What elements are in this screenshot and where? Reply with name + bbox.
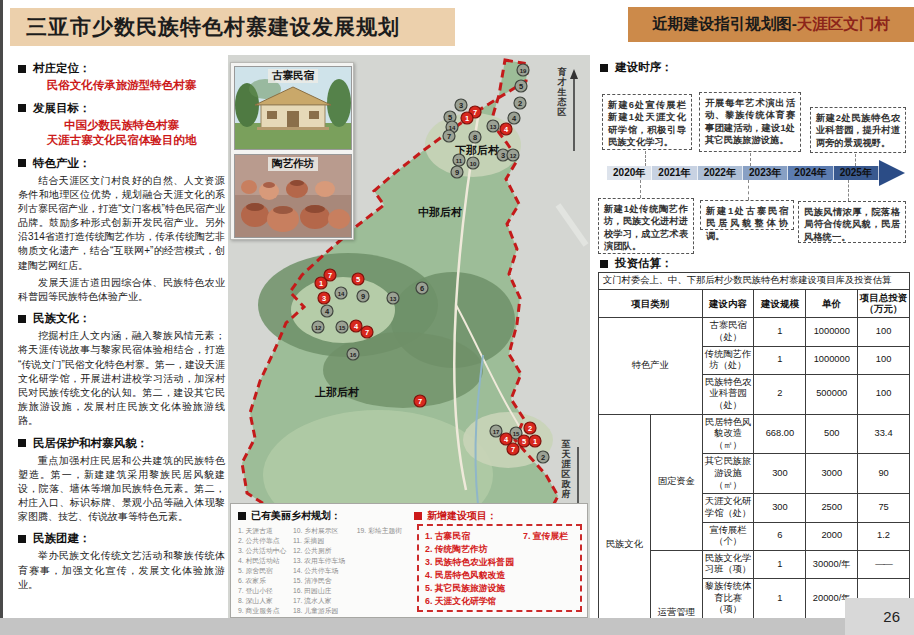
- red-square-icon: [414, 512, 422, 520]
- timeline-year: 2025年: [834, 166, 879, 180]
- road-label-south: 至天涯区政府: [561, 439, 572, 499]
- highlight-line: 天涯古寨文化民宿体验目的地: [18, 133, 225, 149]
- photo-panel: 古寨民宿 陶艺作坊: [230, 62, 354, 240]
- investment-heading: 投资估算：: [600, 256, 673, 271]
- black-square-icon: [18, 439, 26, 447]
- svg-text:7: 7: [418, 397, 422, 406]
- timeline-bar: 2020年2021年2022年2023年2024年2025年: [607, 166, 879, 180]
- svg-text:7: 7: [511, 445, 515, 454]
- svg-text:13: 13: [390, 296, 397, 302]
- timeline-box-2022: 开展每年艺术演出活动、黎族传统体育赛事团建活动，建设1处其它民族旅游设施。: [699, 92, 801, 152]
- table-title: 文门村委会上、中、下那后村少数民族特色村寨建设项目库及投资估算: [599, 273, 910, 290]
- left-edge-line: [0, 0, 3, 635]
- svg-text:7: 7: [365, 328, 369, 337]
- legend-column: 19. 彩绘主题街: [357, 526, 410, 616]
- legend-item: 14. 公共停车场: [293, 566, 357, 576]
- timeline-year: 2022年: [698, 166, 743, 180]
- section-heading: 村庄定位：: [18, 61, 225, 76]
- section-paragraph: 发展天涯古道田园综合体、民族特色农业科普园等民族特色体验产业。: [18, 276, 225, 304]
- table-row: 特色产业古寨民宿（处）11000000100: [599, 318, 910, 346]
- section-paragraph: 举办民族文化传统文艺活动和黎族传统体育赛事，加强文化宣传，发展文化体验旅游业。: [18, 549, 225, 592]
- svg-text:6: 6: [420, 284, 424, 293]
- svg-text:9: 9: [361, 292, 365, 301]
- timeline-year: 2023年: [743, 166, 788, 180]
- timeline-arrow-icon: [879, 160, 905, 186]
- left-section: 民族文化：挖掘村庄人文内涵，融入黎族风情元素；将天涯传说故事与黎家民宿体验相结合…: [18, 311, 225, 428]
- village-label: 中那后村: [418, 206, 462, 218]
- road-label-north: 育才生态区: [557, 66, 568, 117]
- svg-text:9: 9: [455, 168, 459, 177]
- connector: [855, 154, 856, 166]
- svg-text:2: 2: [541, 453, 545, 462]
- black-square-icon: [238, 512, 246, 520]
- left-text-panel: 村庄定位：民俗文化传承旅游型特色村寨发展目标：中国少数民族特色村寨天涯古寨文化民…: [18, 58, 225, 618]
- legend-item: 12. 公共厕所: [293, 546, 357, 556]
- timeline-box-2021: 新建1处传统陶艺作坊，民族文化进村进校学习，成立艺术表演团队。: [598, 198, 694, 254]
- legend-item: 2. 公共停靠点: [238, 536, 293, 546]
- legend-item: 5. 其它民族旅游设施: [425, 582, 523, 595]
- legend-existing-heading: 已有美丽乡村规划：: [238, 509, 587, 523]
- legend-item: 16. 田园山庄: [293, 586, 357, 596]
- legend-item: 19. 彩绘主题街: [357, 526, 410, 536]
- legend-column: 1. 古寨民宿2. 传统陶艺作坊3. 民族特色农业科普园4. 民居特色风貌改造5…: [425, 530, 523, 606]
- legend-item: 7. 宣传展栏: [523, 530, 574, 543]
- page-title: 三亚市少数民族特色村寨建设发展规划: [10, 8, 455, 46]
- section-paragraph: 结合天涯区文门村良好的自然、人文资源条件和地理区位优势，规划融合天涯文化的系列古…: [18, 174, 225, 273]
- legend-existing-list: 1. 天涯古道2. 公共停靠点3. 公共活动中心4. 村民活动站5. 原舍民宿6…: [238, 526, 410, 616]
- section-heading: 特色产业：: [18, 156, 225, 171]
- section-heading: 民族文化：: [18, 311, 225, 326]
- svg-text:15: 15: [513, 431, 520, 437]
- map-title-highlight: 天涯区文门村: [797, 14, 890, 35]
- section-paragraph: 挖掘村庄人文内涵，融入黎族风情元素；将天涯传说故事与黎家民宿体验相结合，打造“传…: [18, 329, 225, 428]
- svg-text:1: 1: [533, 437, 537, 446]
- photo-pottery: 陶艺作坊: [234, 154, 352, 238]
- legend-column: 7. 宣传展栏: [523, 530, 574, 606]
- investment-table: 文门村委会上、中、下那后村少数民族特色村寨建设项目库及投资估算项目类别建设内容建…: [598, 272, 910, 635]
- photo-label-pottery: 陶艺作坊: [268, 157, 318, 171]
- map-title-prefix: 近期建设指引规划图-: [652, 14, 797, 35]
- village-map: 下那后村中那后村上那后村 育才生态区 至天涯区政府 19523514413783…: [228, 55, 590, 620]
- svg-text:2: 2: [518, 99, 522, 108]
- page-number: 26: [845, 598, 914, 635]
- timeline-year: 2021年: [652, 166, 697, 180]
- connector: [750, 153, 751, 166]
- svg-text:8: 8: [473, 133, 477, 142]
- svg-text:5: 5: [356, 275, 360, 284]
- connector: [640, 180, 641, 198]
- legend-item: 18. 儿童游乐园: [293, 606, 357, 616]
- svg-text:13: 13: [490, 124, 497, 130]
- left-section: 发展目标：中国少数民族特色村寨天涯古寨文化民宿体验目的地: [18, 101, 225, 149]
- section-heading: 民居保护和村寨风貌：: [18, 436, 225, 451]
- svg-text:7: 7: [473, 108, 477, 117]
- svg-text:17: 17: [493, 429, 500, 435]
- connector: [645, 151, 646, 166]
- legend-column: 10. 乡村展示区11. 采摘园12. 公共厕所13. 农用车停车场14. 公共…: [293, 526, 357, 616]
- photo-label-guesthouse: 古寨民宿: [268, 69, 318, 83]
- timeline-heading: 建设时序：: [600, 60, 673, 75]
- left-section: 民居保护和村寨风貌：重点加强村庄民居和公共建筑的民族特色塑造。第一，新建建筑采用…: [18, 436, 225, 525]
- page-title-text: 三亚市少数民族特色村寨建设发展规划: [26, 13, 400, 41]
- black-square-icon: [600, 260, 608, 268]
- legend-item: 10. 乡村展示区: [293, 526, 357, 536]
- connector: [748, 180, 749, 200]
- legend-item: 8. 深山人家: [238, 596, 293, 606]
- timeline-year: 2024年: [788, 166, 833, 180]
- left-section: 民族团建：举办民族文化传统文艺活动和黎族传统体育赛事，加强文化宣传，发展文化体验…: [18, 531, 225, 592]
- planning-slide: 三亚市少数民族特色村寨建设发展规划 近期建设指引规划图-天涯区文门村 村庄定位：…: [0, 0, 914, 635]
- table-header-cell: 项目总投资（万元）: [858, 289, 910, 318]
- connector: [848, 180, 849, 201]
- legend-item: 6. 天涯文化研学馆: [425, 595, 523, 608]
- legend-item: 2. 传统陶艺作坊: [425, 543, 523, 556]
- left-section: 村庄定位：民俗文化传承旅游型特色村寨: [18, 61, 225, 94]
- black-square-icon: [18, 159, 26, 167]
- svg-text:11: 11: [456, 158, 463, 164]
- svg-text:5: 5: [522, 437, 526, 446]
- section-paragraph: 重点加强村庄民居和公共建筑的民族特色塑造。第一，新建建筑采用黎族民居风貌建设，院…: [18, 454, 225, 525]
- section-heading: 民族团建：: [18, 531, 225, 546]
- highlight-line: 中国少数民族特色村寨: [18, 118, 225, 134]
- legend-item: 1. 天涯古道: [238, 526, 293, 536]
- svg-text:2: 2: [528, 424, 532, 433]
- svg-text:16: 16: [350, 352, 357, 358]
- black-square-icon: [18, 315, 26, 323]
- timeline-box-2024: 新建2处民族特色农业科普园，提升村道两旁的景观视野。: [810, 107, 906, 153]
- photo-guesthouse: 古寨民宿: [234, 66, 352, 150]
- left-section: 特色产业：结合天涯区文门村良好的自然、人文资源条件和地理区位优势，规划融合天涯文…: [18, 156, 225, 305]
- legend-item: 3. 民族特色农业科普园: [425, 556, 523, 569]
- legend-item: 9. 商业服务点: [238, 606, 293, 616]
- legend-item: 17. 流水人家: [293, 596, 357, 606]
- timeline-box-2023: 新建1处古寨民宿 民居风貌整体协调。: [700, 200, 794, 230]
- svg-text:10: 10: [470, 161, 477, 167]
- black-square-icon: [18, 65, 26, 73]
- legend-item: 7. 登山小径: [238, 586, 293, 596]
- svg-text:15: 15: [339, 325, 346, 331]
- legend-item: 15. 清净民舍: [293, 576, 357, 586]
- svg-text:7: 7: [447, 132, 451, 141]
- black-square-icon: [18, 104, 26, 112]
- svg-text:1: 1: [465, 114, 469, 123]
- legend-item: 5. 原舍民宿: [238, 566, 293, 576]
- legend-new-list: 1. 古寨民宿2. 传统陶艺作坊3. 民族特色农业科普园4. 民居特色风貌改造5…: [417, 524, 582, 612]
- timeline-box-2025: 民族风情浓厚，院落格局符合传统风貌，民居风格统一。: [798, 201, 906, 243]
- table-row: 民族文化固定资金民居特色风貌改造（㎡）668.0050033.4: [599, 414, 910, 454]
- map-title: 近期建设指引规划图-天涯区文门村: [628, 7, 914, 42]
- legend-item: 4. 村民活动站: [238, 556, 293, 566]
- slide-footer-strip: [0, 618, 914, 635]
- svg-text:3: 3: [501, 151, 505, 160]
- highlight-line: 民俗文化传承旅游型特色村寨: [18, 78, 225, 94]
- svg-text:12: 12: [510, 153, 517, 159]
- svg-text:14: 14: [338, 291, 345, 297]
- table-header-row: 项目类别建设内容建设规模单价项目总投资（万元）: [599, 289, 910, 318]
- svg-text:12: 12: [315, 325, 322, 331]
- svg-text:19: 19: [520, 68, 527, 74]
- legend-item: 11. 采摘园: [293, 536, 357, 546]
- legend-item: 3. 公共活动中心: [238, 546, 293, 556]
- village-label: 上那后村: [314, 386, 359, 398]
- legend-item: 1. 古寨民宿: [425, 530, 523, 543]
- svg-text:1: 1: [319, 279, 323, 288]
- section-heading: 发展目标：: [18, 101, 225, 116]
- legend-item: 13. 农用车停车场: [293, 556, 357, 566]
- black-square-icon: [18, 535, 26, 543]
- svg-text:7: 7: [328, 271, 332, 280]
- legend-item: 6. 农家乐: [238, 576, 293, 586]
- legend-new-heading: 新增建设项目：: [414, 509, 497, 523]
- svg-text:5: 5: [519, 82, 523, 91]
- timeline-year: 2020年: [607, 166, 652, 180]
- svg-text:3: 3: [322, 294, 326, 303]
- legend-item: 4. 民居特色风貌改造: [425, 569, 523, 582]
- svg-text:3: 3: [459, 101, 463, 110]
- timeline-box-2020: 新建6处宣传展栏 新建1处天涯文化研学馆，积极引导民族文化学习。: [602, 94, 692, 150]
- black-square-icon: [600, 64, 608, 72]
- svg-text:5: 5: [448, 113, 452, 122]
- legend-column: 1. 天涯古道2. 公共停靠点3. 公共活动中心4. 村民活动站5. 原舍民宿6…: [238, 526, 293, 616]
- map-legend: 已有美丽乡村规划： 1. 天涯古道2. 公共停靠点3. 公共活动中心4. 村民活…: [230, 503, 588, 618]
